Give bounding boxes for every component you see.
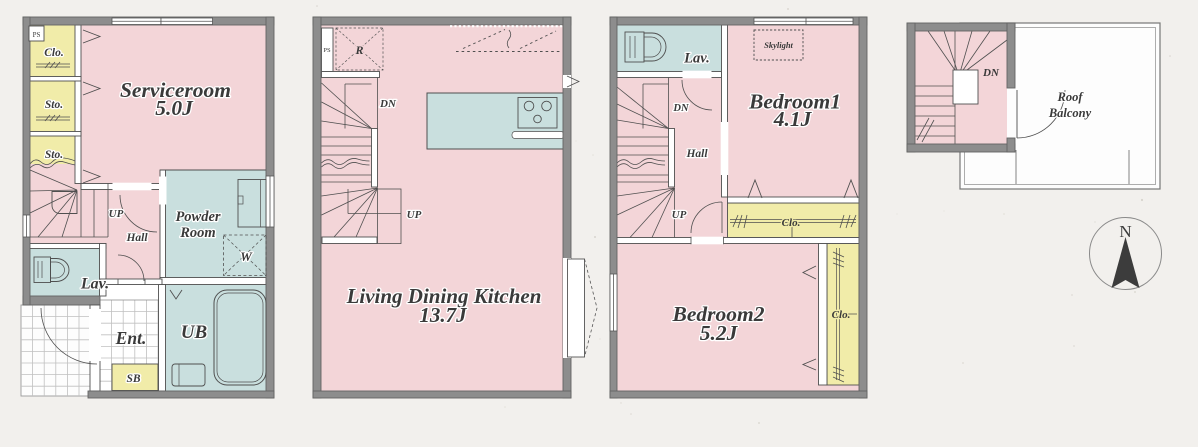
svg-text:Skylight: Skylight	[764, 40, 793, 50]
svg-text:UP: UP	[407, 209, 422, 221]
svg-text:UB: UB	[181, 322, 207, 343]
svg-text:5.2J: 5.2J	[700, 321, 739, 345]
svg-text:PS: PS	[323, 47, 331, 54]
svg-text:Hall: Hall	[125, 232, 148, 244]
svg-text:Room: Room	[179, 225, 215, 241]
svg-text:Sto.: Sto.	[45, 99, 63, 111]
svg-text:Sto.: Sto.	[45, 149, 63, 161]
svg-text:UP: UP	[109, 208, 124, 220]
svg-text:Ent.: Ent.	[115, 328, 147, 348]
svg-text:Powder: Powder	[175, 209, 220, 225]
svg-text:DN: DN	[982, 67, 1000, 79]
svg-text:13.7J: 13.7J	[419, 303, 468, 327]
svg-text:PS: PS	[33, 31, 41, 39]
svg-text:Hall: Hall	[685, 148, 708, 160]
svg-text:Roof: Roof	[1057, 90, 1085, 104]
svg-text:Lav.: Lav.	[80, 276, 109, 293]
svg-text:Clo.: Clo.	[782, 217, 801, 229]
svg-text:5.0J: 5.0J	[155, 96, 194, 120]
svg-text:UP: UP	[672, 209, 687, 221]
svg-text:4.1J: 4.1J	[773, 107, 813, 131]
svg-text:DN: DN	[379, 98, 397, 110]
svg-text:N: N	[1119, 222, 1131, 241]
svg-text:R: R	[354, 43, 363, 57]
svg-text:SB: SB	[126, 373, 140, 385]
svg-text:Lav.: Lav.	[683, 51, 710, 67]
svg-text:Clo.: Clo.	[44, 47, 64, 59]
svg-text:W: W	[240, 249, 253, 264]
svg-text:Balcony: Balcony	[1048, 106, 1092, 120]
svg-text:DN: DN	[672, 103, 689, 114]
svg-text:Clo.: Clo.	[832, 309, 851, 321]
